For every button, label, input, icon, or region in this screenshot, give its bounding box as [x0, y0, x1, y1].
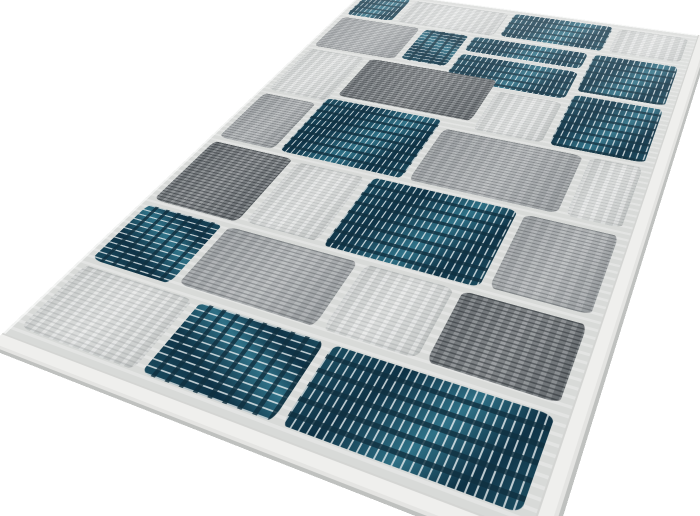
rug-patch-gray-light: [608, 29, 688, 62]
rug: [0, 0, 700, 516]
rug-surface: [3, 0, 698, 516]
rug-patch-gray-mid: [489, 215, 619, 315]
product-photo-canvas: [0, 0, 700, 516]
rug-patch-gray-light: [473, 91, 562, 142]
